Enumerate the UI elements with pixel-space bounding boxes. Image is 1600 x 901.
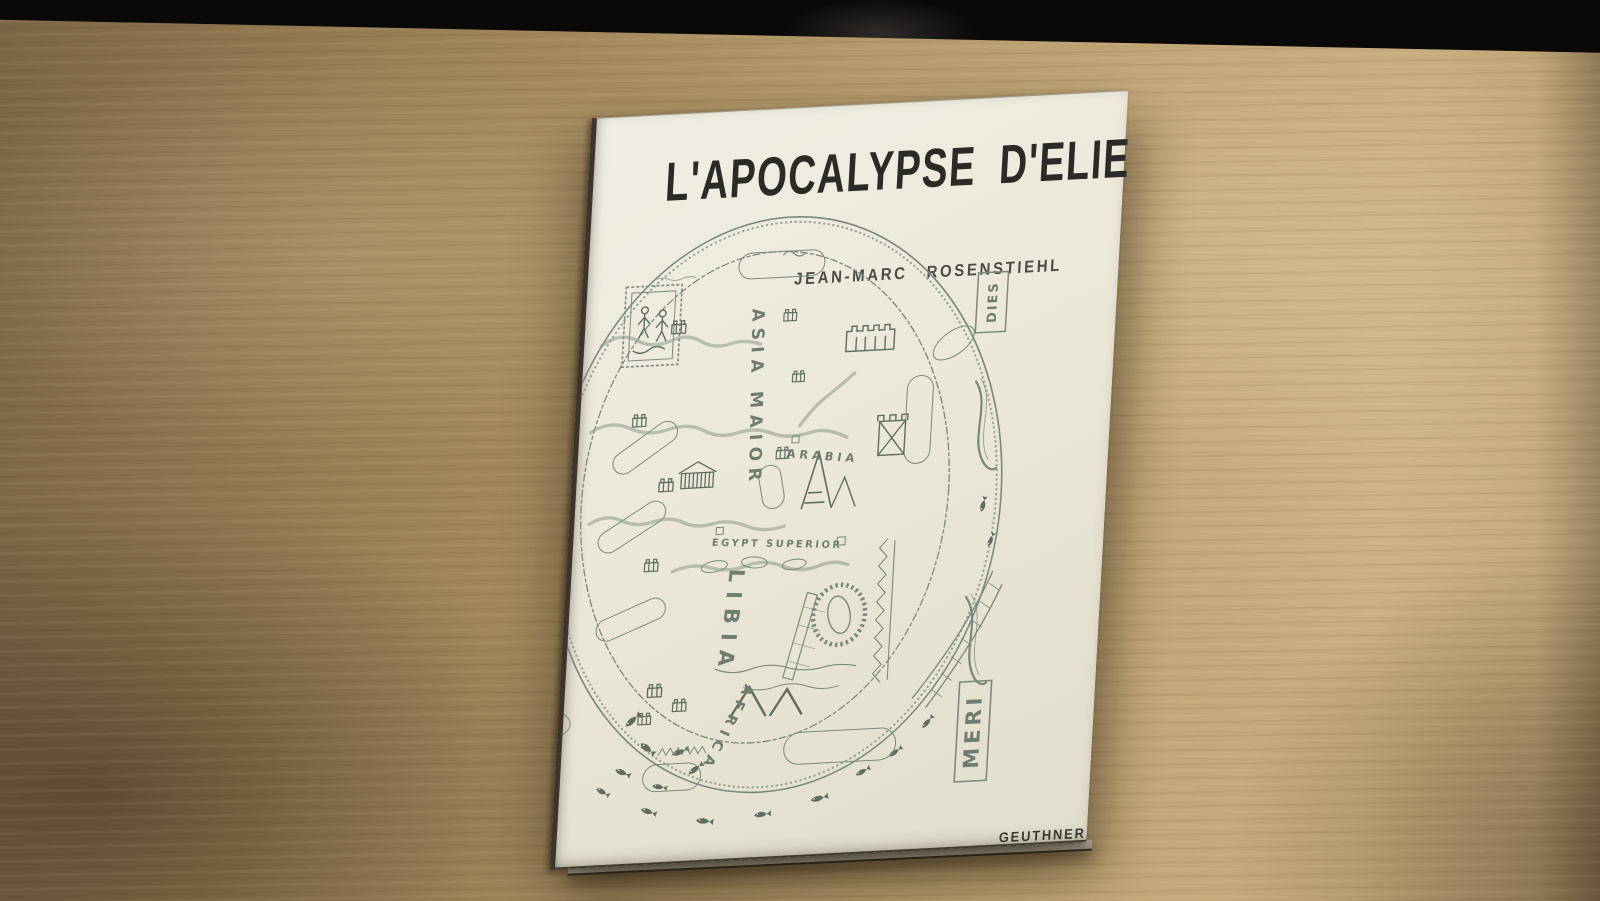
book-title: L'APOCALYPSE D'ELIE [664,137,1004,210]
paradise-box [622,250,806,367]
map-illustration: ASIA MAIOR ARABIA EGYPT SUPERIOR LIBIA A… [527,202,1041,846]
label-meri: MERI [959,693,987,769]
label-arabia: ARABIA [786,446,860,465]
mountains-group [730,451,858,719]
label-egypt-superior: EGYPT SUPERIOR [711,538,843,551]
label-libia: LIBIA [712,569,749,676]
meridies-lower-box: MERI [954,680,992,782]
label-dies: DIES [985,281,1002,324]
book: L'APOCALYPSE D'ELIE JEAN-MARC ROSENSTIEH… [550,90,1128,870]
meridies-upper-box: DIES [975,271,1008,332]
label-africa: AFRICA [697,682,757,774]
photo-scene: L'APOCALYPSE D'ELIE JEAN-MARC ROSENSTIEH… [0,0,1600,901]
label-asia-maior: ASIA MAIOR [744,307,768,488]
book-front-cover: L'APOCALYPSE D'ELIE JEAN-MARC ROSENSTIEH… [550,90,1128,870]
sea-ring [534,205,1023,804]
book-publisher: GEUTHNER [998,825,1086,846]
